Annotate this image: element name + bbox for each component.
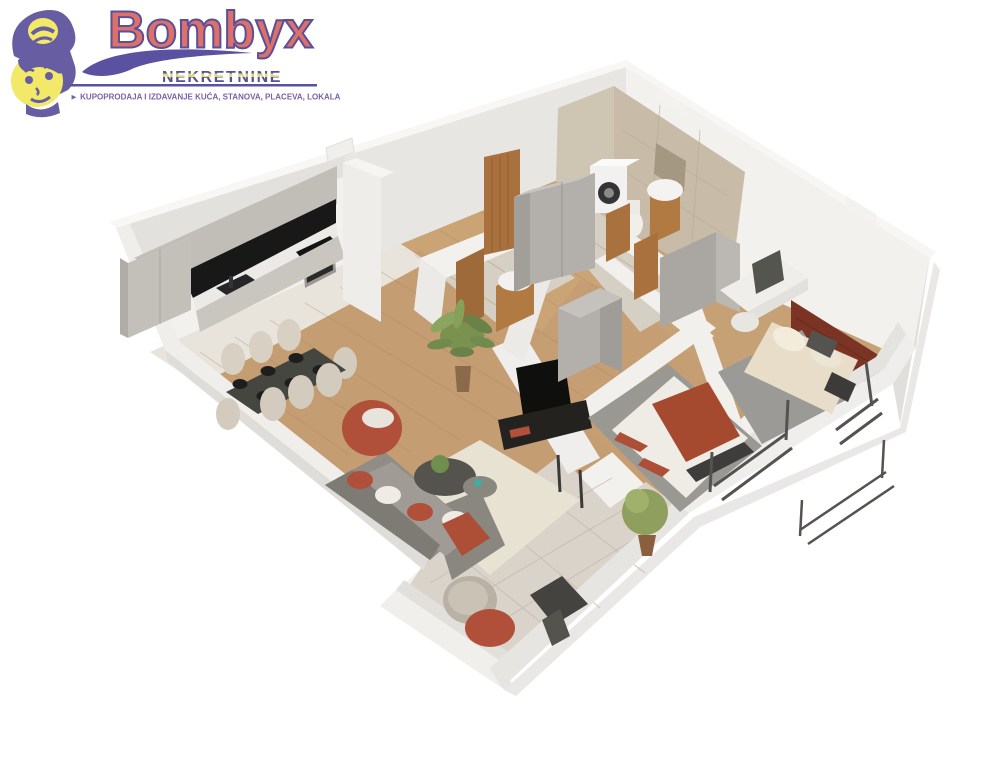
svg-text:► KUPOPRODAJA I IZDAVANJE KUĆA: ► KUPOPRODAJA I IZDAVANJE KUĆA, STANOVA,… xyxy=(70,93,341,102)
svg-text:NEKRETNINE: NEKRETNINE xyxy=(162,69,282,86)
